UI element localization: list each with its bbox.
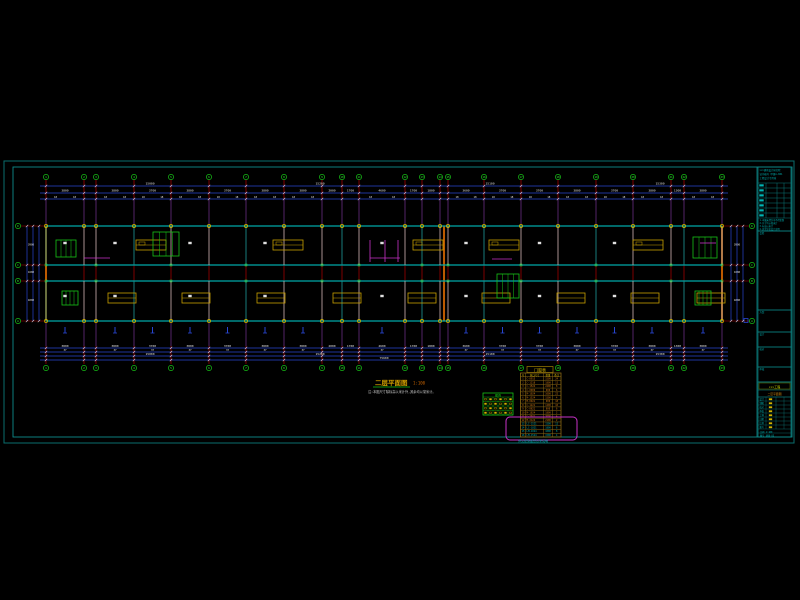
- svg-text:3800: 3800: [261, 344, 268, 348]
- dimension-texts: 3800380018183738003800181837370037001818…: [28, 182, 741, 361]
- svg-text:4600: 4600: [378, 344, 385, 348]
- svg-text:18: 18: [73, 195, 77, 199]
- cad-drawing: 1122334455667788991010111112121313141415…: [0, 0, 800, 600]
- room-features: [56, 232, 725, 333]
- svg-text:18: 18: [473, 195, 477, 199]
- svg-text:15000: 15000: [145, 352, 154, 356]
- svg-text:18: 18: [273, 195, 277, 199]
- svg-text:18: 18: [311, 195, 315, 199]
- svg-text:13: 13: [420, 366, 424, 370]
- drawing-frame: [4, 161, 794, 443]
- svg-text:1200: 1200: [545, 404, 551, 407]
- svg-text:11: 11: [357, 175, 361, 179]
- svg-text:3800: 3800: [299, 189, 306, 193]
- svg-text:3800: 3800: [61, 189, 68, 193]
- svg-text:16: 16: [482, 366, 486, 370]
- svg-text:3700: 3700: [611, 189, 618, 193]
- svg-text:15300: 15300: [655, 182, 664, 186]
- svg-text:3800: 3800: [61, 344, 68, 348]
- svg-text:C-0909: C-0909: [527, 389, 536, 392]
- svg-text:4: 4: [556, 434, 558, 437]
- svg-text:37: 37: [538, 348, 542, 352]
- svg-text:1800: 1800: [545, 411, 551, 414]
- svg-text:LM-1524: LM-1524: [527, 434, 538, 437]
- svg-text:3800: 3800: [261, 189, 268, 193]
- svg-text:37: 37: [613, 348, 617, 352]
- svg-text:1500: 1500: [545, 434, 551, 437]
- svg-text:2400: 2400: [545, 385, 551, 388]
- svg-text:3700: 3700: [149, 189, 156, 193]
- svg-text:3800: 3800: [699, 344, 706, 348]
- svg-text:1300: 1300: [674, 189, 681, 193]
- svg-text:审核: 审核: [760, 367, 765, 371]
- svg-text:15200: 15200: [315, 182, 324, 186]
- svg-text:4.其余详见设计说明: 4.其余详见设计说明: [760, 227, 781, 231]
- schedule-table: 号洞口尺寸数量备注1C-09151500242C-12181800123C-15…: [506, 367, 577, 441]
- svg-text:13: 13: [522, 423, 525, 426]
- title-block: ×××建筑设计研究院证书编号 甲级A-001工程设计专用章1.本图未经许可不得复…: [758, 167, 791, 437]
- svg-text:37: 37: [301, 348, 305, 352]
- grid-bubbles: 1122334455667788991010111112121313141415…: [15, 174, 754, 370]
- svg-text:8: 8: [556, 385, 558, 388]
- svg-text:18: 18: [142, 195, 146, 199]
- svg-text:2100: 2100: [545, 419, 551, 422]
- svg-text:15300: 15300: [655, 352, 664, 356]
- svg-text:1800: 1800: [545, 381, 551, 384]
- dimension-lines: [26, 185, 744, 361]
- svg-text:M-0921: M-0921: [527, 400, 536, 403]
- svg-text:16: 16: [482, 175, 486, 179]
- svg-text:600: 600: [546, 408, 551, 411]
- svg-text:C-1221: C-1221: [527, 404, 536, 407]
- svg-text:3800: 3800: [573, 344, 580, 348]
- svg-text:数量: 数量: [546, 373, 551, 377]
- svg-text:12: 12: [403, 366, 407, 370]
- svg-text:LC-1821: LC-1821: [527, 426, 538, 429]
- svg-text:6: 6: [522, 396, 524, 399]
- svg-text:证书编号 甲级A-001: 证书编号 甲级A-001: [760, 172, 784, 176]
- svg-text:6: 6: [556, 426, 558, 429]
- svg-text:校对: 校对: [760, 347, 765, 351]
- svg-text:21: 21: [669, 175, 673, 179]
- svg-text:3700: 3700: [224, 344, 231, 348]
- svg-text:18: 18: [641, 195, 645, 199]
- svg-text:1700: 1700: [347, 189, 354, 193]
- svg-text:1300: 1300: [674, 344, 681, 348]
- svg-text:15000: 15000: [145, 182, 154, 186]
- svg-text:37: 37: [263, 348, 267, 352]
- svg-text:23: 23: [720, 366, 724, 370]
- svg-text:18: 18: [529, 195, 533, 199]
- svg-text:1500: 1500: [545, 378, 551, 381]
- svg-text:3700: 3700: [611, 344, 618, 348]
- svg-text:14: 14: [438, 366, 442, 370]
- svg-text:工程设计专用章: 工程设计专用章: [760, 176, 777, 180]
- svg-text:1700: 1700: [410, 344, 417, 348]
- svg-text:18: 18: [369, 195, 373, 199]
- svg-text:19: 19: [594, 366, 598, 370]
- svg-text:37: 37: [188, 348, 192, 352]
- svg-text:18: 18: [566, 195, 570, 199]
- svg-text:M-1024: M-1024: [527, 393, 536, 396]
- svg-text:M-2124: M-2124: [527, 419, 536, 422]
- svg-text:14: 14: [438, 175, 442, 179]
- svg-text:3700: 3700: [149, 344, 156, 348]
- svg-text:37: 37: [63, 348, 67, 352]
- svg-text:37: 37: [701, 348, 705, 352]
- svg-text:C-1524: C-1524: [527, 385, 536, 388]
- svg-text:37: 37: [113, 348, 117, 352]
- svg-text:12: 12: [522, 419, 525, 422]
- svg-text:14: 14: [522, 426, 525, 429]
- svg-text:C-0915: C-0915: [527, 378, 536, 381]
- svg-text:18: 18: [692, 195, 696, 199]
- svg-text:设计: 设计: [760, 397, 765, 401]
- svg-text:900: 900: [546, 400, 551, 403]
- svg-text:37: 37: [380, 348, 384, 352]
- svg-text:工种: 工种: [760, 413, 765, 417]
- svg-text:37: 37: [226, 348, 230, 352]
- svg-text:4: 4: [556, 396, 558, 399]
- svg-text:3800: 3800: [648, 344, 655, 348]
- legend-title: 图例: [495, 393, 501, 398]
- svg-text:8: 8: [556, 430, 558, 433]
- titleblock-project-name: ×××工程: [769, 384, 780, 389]
- svg-text:12: 12: [403, 175, 407, 179]
- svg-text:1600: 1600: [28, 270, 35, 274]
- svg-text:10: 10: [522, 411, 525, 414]
- svg-text:LM-1024: LM-1024: [527, 430, 538, 433]
- svg-text:4000: 4000: [28, 298, 35, 302]
- building-walls: [44, 224, 723, 322]
- svg-text:1000: 1000: [545, 393, 551, 396]
- svg-text:75600: 75600: [379, 356, 388, 360]
- svg-text:18: 18: [510, 195, 514, 199]
- svg-text:3800: 3800: [648, 189, 655, 193]
- svg-text:备注: 备注: [554, 373, 559, 377]
- svg-text:3800: 3800: [186, 189, 193, 193]
- svg-text:10: 10: [340, 175, 344, 179]
- schedule-title: 门窗表: [534, 367, 546, 373]
- titleblock-drawing-name: 二层平面图: [768, 392, 782, 396]
- svg-text:17: 17: [519, 366, 523, 370]
- svg-text:C-0621: C-0621: [527, 408, 536, 411]
- svg-text:4: 4: [522, 389, 524, 392]
- titleblock-scale: 比例 1:100: [760, 430, 773, 434]
- svg-text:18: 18: [604, 195, 608, 199]
- svg-text:15: 15: [522, 430, 525, 433]
- plan-note: 注:本图尺寸除标高以米计外,其余均以毫米计。: [368, 389, 436, 394]
- svg-text:18: 18: [104, 195, 108, 199]
- svg-text:18: 18: [492, 195, 496, 199]
- svg-text:21: 21: [669, 366, 673, 370]
- svg-text:审核: 审核: [760, 409, 765, 413]
- svg-text:M-1824: M-1824: [527, 411, 536, 414]
- svg-text:1600: 1600: [734, 270, 741, 274]
- svg-text:×××建筑设计研究院: ×××建筑设计研究院: [760, 168, 782, 172]
- svg-text:5: 5: [522, 393, 524, 396]
- svg-text:22: 22: [682, 366, 686, 370]
- svg-text:3700: 3700: [536, 344, 543, 348]
- svg-text:18: 18: [123, 195, 127, 199]
- svg-text:3700: 3700: [499, 344, 506, 348]
- svg-text:18: 18: [711, 195, 715, 199]
- svg-text:1500: 1500: [545, 396, 551, 399]
- svg-text:19: 19: [594, 175, 598, 179]
- svg-text:16: 16: [522, 434, 525, 437]
- cad-canvas: 1122334455667788991010111112121313141415…: [0, 0, 800, 600]
- svg-text:3700: 3700: [536, 189, 543, 193]
- svg-text:日期: 日期: [760, 417, 765, 421]
- svg-text:20: 20: [631, 366, 635, 370]
- svg-text:18: 18: [585, 195, 589, 199]
- svg-text:24: 24: [555, 378, 558, 381]
- svg-text:9: 9: [522, 408, 524, 411]
- svg-text:LC-1521: LC-1521: [527, 423, 538, 426]
- svg-text:22: 22: [555, 393, 558, 396]
- svg-text:3: 3: [522, 385, 524, 388]
- svg-text:37: 37: [650, 348, 654, 352]
- svg-text:4600: 4600: [378, 189, 385, 193]
- svg-text:22: 22: [682, 175, 686, 179]
- svg-text:1: 1: [522, 378, 524, 381]
- footer-note: 详见建施图纸目录说明: [518, 438, 548, 443]
- svg-text:18: 18: [217, 195, 221, 199]
- svg-text:3800: 3800: [299, 344, 306, 348]
- svg-text:1800: 1800: [427, 189, 434, 193]
- svg-text:7: 7: [522, 400, 524, 403]
- svg-text:洞口尺寸: 洞口尺寸: [530, 373, 540, 377]
- svg-text:1000: 1000: [545, 430, 551, 433]
- svg-text:18: 18: [555, 400, 558, 403]
- svg-text:3800: 3800: [186, 344, 193, 348]
- svg-text:1500: 1500: [545, 423, 551, 426]
- svg-text:2: 2: [556, 411, 558, 414]
- svg-text:3800: 3800: [573, 189, 580, 193]
- titleblock-number: 图号 建施-05: [760, 433, 775, 437]
- svg-text:比例: 比例: [760, 421, 765, 425]
- svg-text:8: 8: [522, 404, 524, 407]
- svg-text:18: 18: [622, 195, 626, 199]
- svg-text:18: 18: [54, 195, 58, 199]
- svg-text:4000: 4000: [734, 298, 741, 302]
- svg-text:3900: 3900: [734, 243, 741, 247]
- svg-text:2: 2: [522, 381, 524, 384]
- svg-text:37: 37: [501, 348, 505, 352]
- svg-text:设计: 设计: [760, 332, 765, 336]
- svg-text:10: 10: [555, 404, 558, 407]
- svg-text:20: 20: [631, 175, 635, 179]
- svg-text:18: 18: [455, 195, 459, 199]
- svg-text:900: 900: [546, 389, 551, 392]
- svg-text:18: 18: [556, 175, 560, 179]
- svg-text:M-1524: M-1524: [527, 396, 536, 399]
- svg-text:3800: 3800: [111, 344, 118, 348]
- svg-text:2: 2: [556, 419, 558, 422]
- svg-text:18: 18: [392, 195, 396, 199]
- svg-text:11: 11: [357, 366, 361, 370]
- svg-text:15: 15: [446, 366, 450, 370]
- svg-text:37: 37: [575, 348, 579, 352]
- svg-text:12: 12: [555, 423, 558, 426]
- svg-text:18: 18: [292, 195, 296, 199]
- svg-text:10: 10: [340, 366, 344, 370]
- svg-text:2000: 2000: [328, 189, 335, 193]
- svg-text:18: 18: [547, 195, 551, 199]
- svg-text:3600: 3600: [462, 189, 469, 193]
- svg-text:C-1218: C-1218: [527, 381, 536, 384]
- svg-text:方案: 方案: [760, 310, 765, 314]
- svg-text:1800: 1800: [427, 344, 434, 348]
- svg-text:6: 6: [556, 408, 558, 411]
- svg-text:1800: 1800: [545, 426, 551, 429]
- svg-text:23: 23: [720, 175, 724, 179]
- svg-text:1700: 1700: [347, 344, 354, 348]
- svg-text:制图: 制图: [760, 401, 764, 405]
- svg-text:18: 18: [254, 195, 258, 199]
- svg-text:3900: 3900: [28, 243, 35, 247]
- column-grid: [21, 180, 749, 364]
- svg-text:2000: 2000: [328, 344, 335, 348]
- svg-text:12: 12: [555, 381, 558, 384]
- svg-text:会签: 会签: [760, 231, 765, 235]
- svg-text:18: 18: [160, 195, 164, 199]
- drawing-scale: 1:100: [413, 381, 426, 386]
- svg-text:3800: 3800: [111, 189, 118, 193]
- svg-text:17: 17: [519, 175, 523, 179]
- svg-text:18: 18: [198, 195, 202, 199]
- svg-text:3700: 3700: [224, 189, 231, 193]
- svg-text:18: 18: [235, 195, 239, 199]
- svg-text:15200: 15200: [315, 352, 324, 356]
- svg-text:13: 13: [420, 175, 424, 179]
- svg-text:18: 18: [556, 366, 560, 370]
- svg-text:37: 37: [464, 348, 468, 352]
- svg-text:18: 18: [179, 195, 183, 199]
- generated-geometry: 1122334455667788991010111112121313141415…: [4, 161, 794, 443]
- svg-text:15100: 15100: [485, 182, 494, 186]
- svg-text:15: 15: [446, 175, 450, 179]
- svg-text:3600: 3600: [462, 344, 469, 348]
- svg-text:3800: 3800: [699, 189, 706, 193]
- svg-text:15100: 15100: [485, 352, 494, 356]
- drawing-title: 二层平面图: [375, 378, 408, 387]
- svg-text:6: 6: [556, 389, 558, 392]
- svg-text:18: 18: [660, 195, 664, 199]
- svg-text:校对: 校对: [760, 405, 765, 409]
- svg-text:1700: 1700: [410, 189, 417, 193]
- svg-text:图号: 图号: [760, 425, 765, 429]
- svg-text:3700: 3700: [499, 189, 506, 193]
